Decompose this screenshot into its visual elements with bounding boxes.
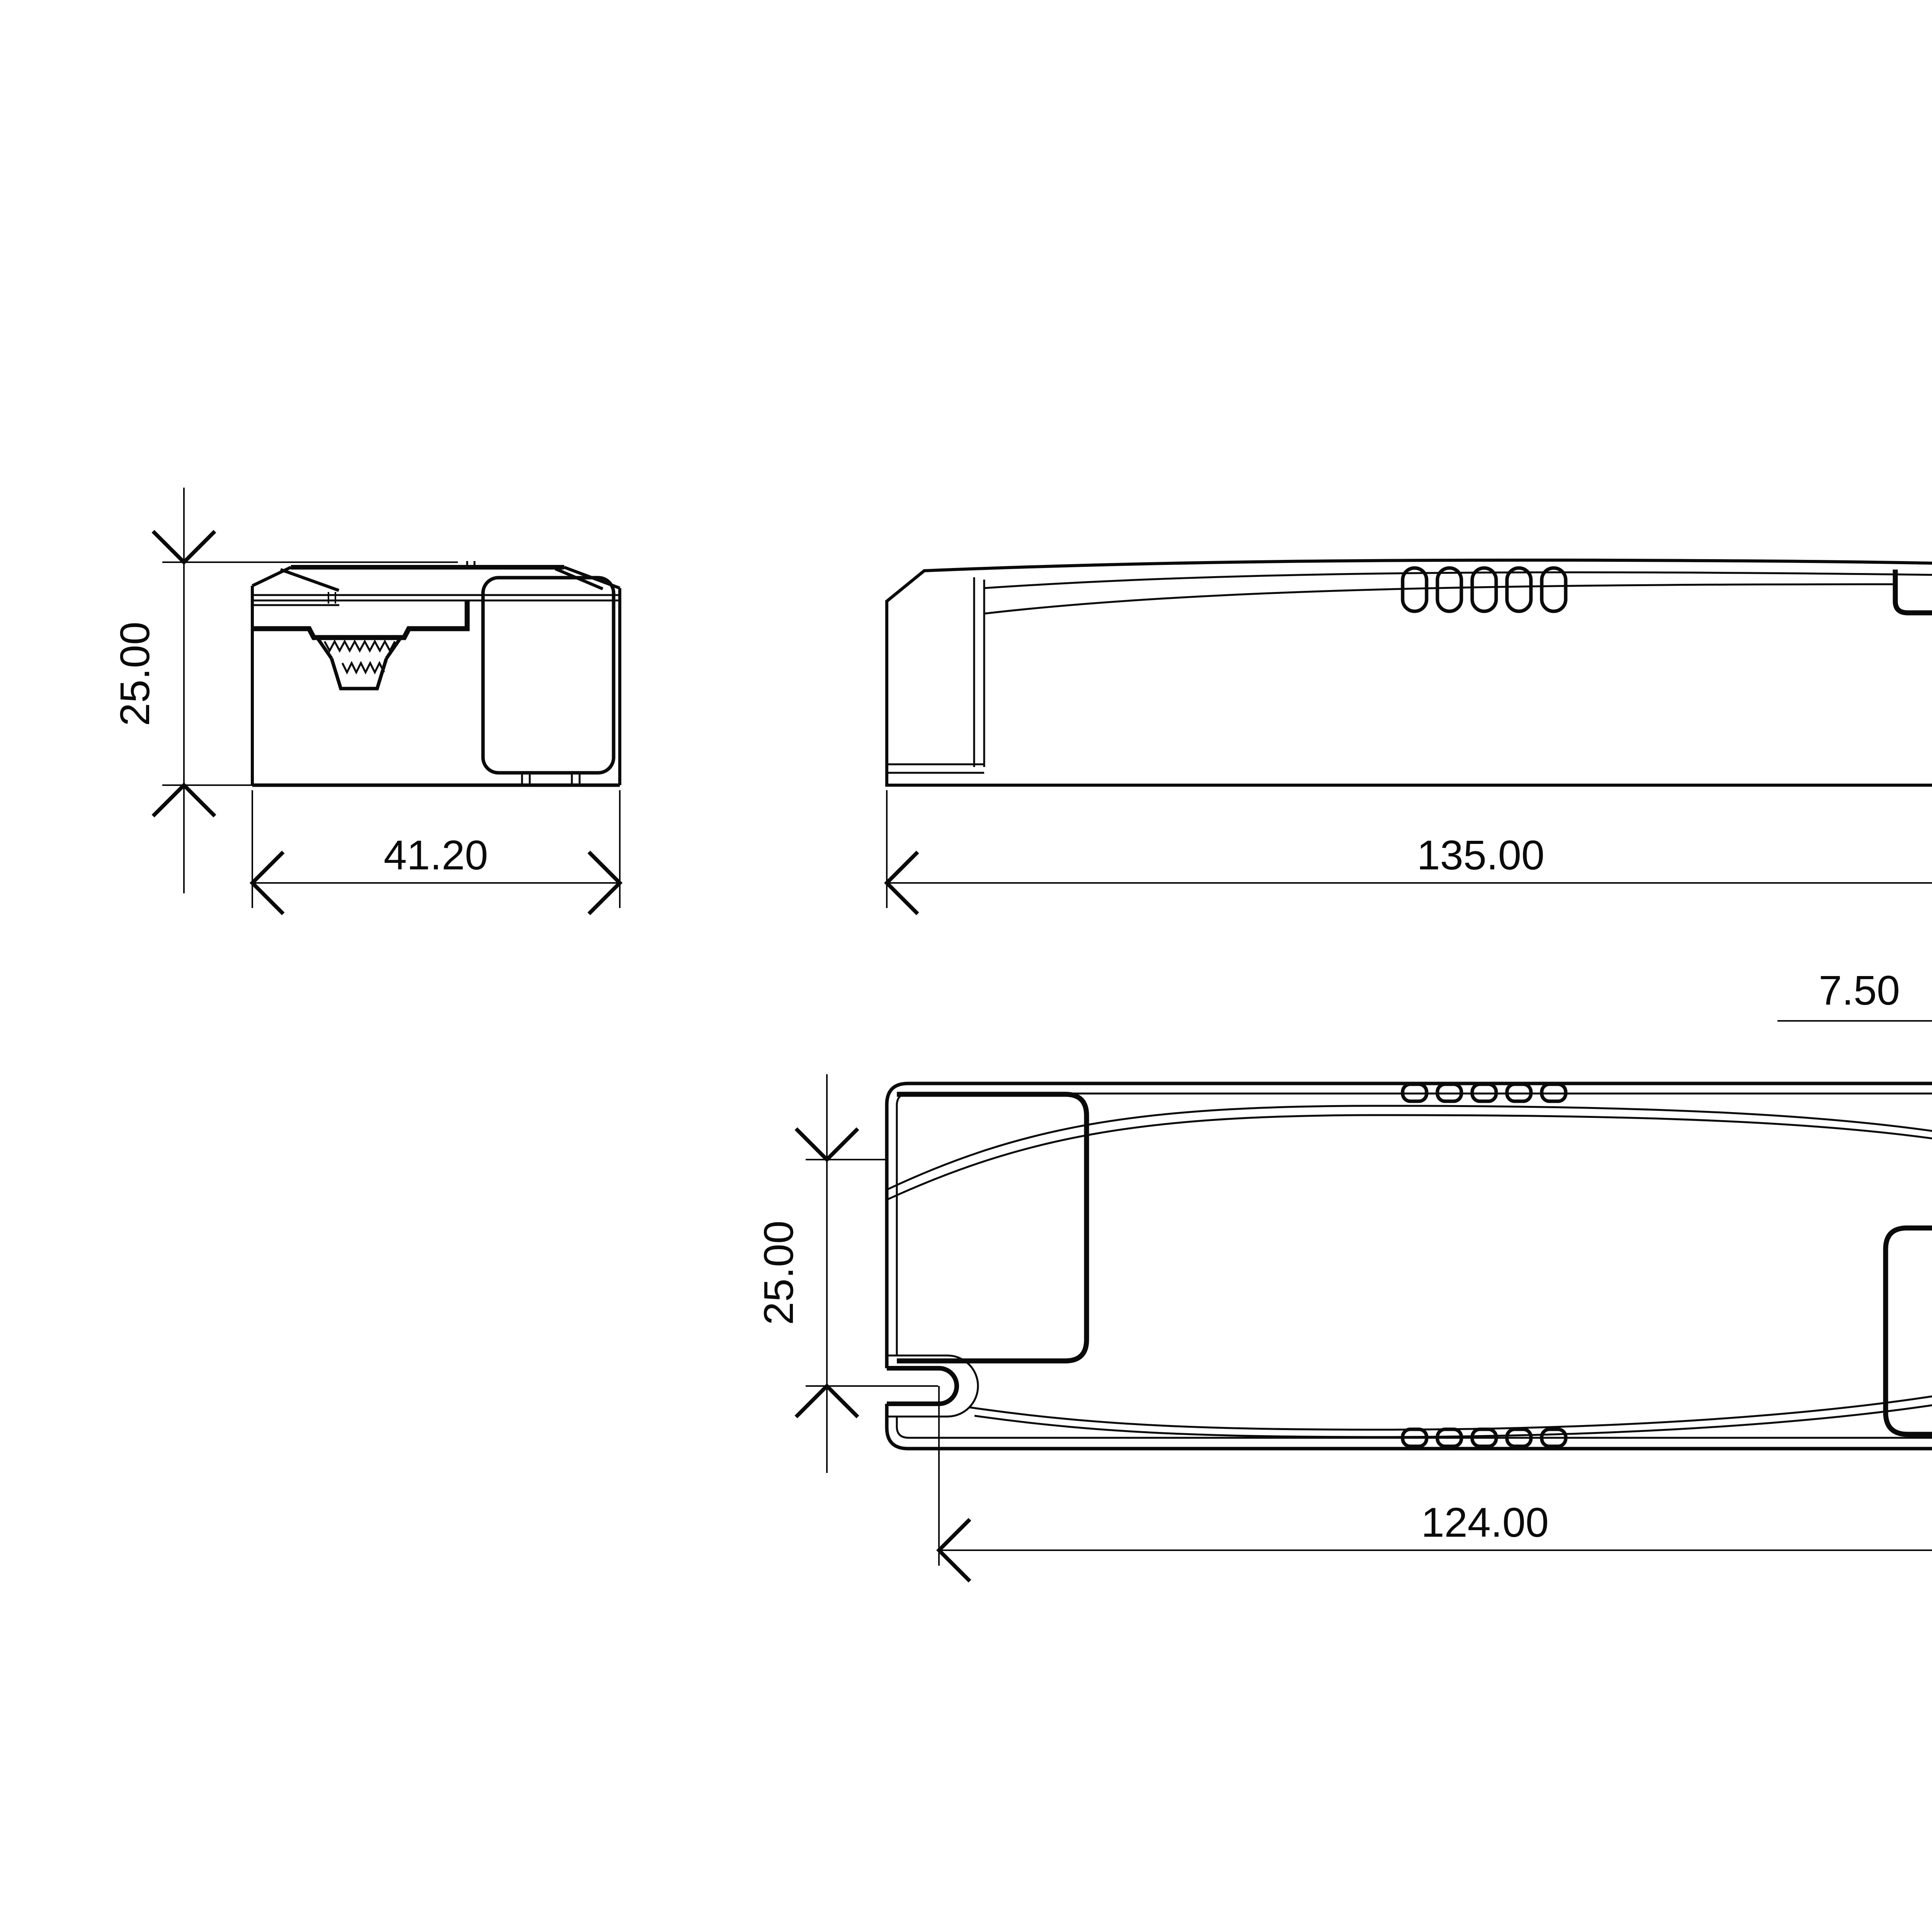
vent-slot xyxy=(1472,568,1496,611)
dim-label-slot-offset: 7.50 xyxy=(1819,967,1900,1014)
dim-label-slot-horizontal-distance: 124.00 xyxy=(1421,1499,1549,1546)
dim-label-end-height: 25.00 xyxy=(111,622,158,726)
end-right-compartment xyxy=(483,578,614,773)
vent-slot xyxy=(1507,568,1531,611)
vent-slot xyxy=(1542,568,1566,611)
top-outline xyxy=(887,1083,1932,1449)
dimension-slot-vertical-distance: 25.00 xyxy=(755,1074,938,1473)
side-vent-slots xyxy=(1403,568,1566,611)
side-terminal-cover xyxy=(1895,570,1932,613)
top-lid-curve-upper-2 xyxy=(888,1115,1932,1199)
dimension-end-width: 41.20 xyxy=(252,790,620,914)
side-outline xyxy=(887,560,1932,785)
end-seam-break-ticks xyxy=(328,592,335,604)
end-chamfer-left-inner xyxy=(281,570,339,590)
top-terminal-compartment xyxy=(897,1094,1087,1361)
vent-slot xyxy=(1437,568,1461,611)
dim-label-body-length: 135.00 xyxy=(1417,832,1544,878)
enclosure-dimension-drawing: 25.00 41.20 135.00 7.50 4.00 xyxy=(0,0,1932,1932)
top-output-compartment xyxy=(1886,1228,1932,1434)
dimension-slot-horizontal-distance: 124.00 xyxy=(939,1370,1932,1581)
dim-label-slot-vertical-distance: 25.00 xyxy=(755,1221,802,1325)
side-view xyxy=(887,560,1932,785)
top-view xyxy=(887,1083,1932,1449)
end-connector-teeth-row1 xyxy=(325,641,395,651)
dimension-body-length: 135.00 xyxy=(887,790,1932,914)
technical-drawing-canvas: 25.00 41.20 135.00 7.50 4.00 xyxy=(0,0,1932,1932)
end-view xyxy=(252,561,620,785)
end-connector-body xyxy=(332,658,386,689)
side-lid-curve-upper xyxy=(984,572,1932,588)
side-lid-curve-lower xyxy=(984,584,1895,614)
end-connector-teeth-row2 xyxy=(342,663,384,672)
top-lid-curve-upper-1 xyxy=(888,1106,1932,1189)
dim-label-end-width: 41.20 xyxy=(384,832,488,878)
top-inner-wall xyxy=(897,1094,1932,1438)
